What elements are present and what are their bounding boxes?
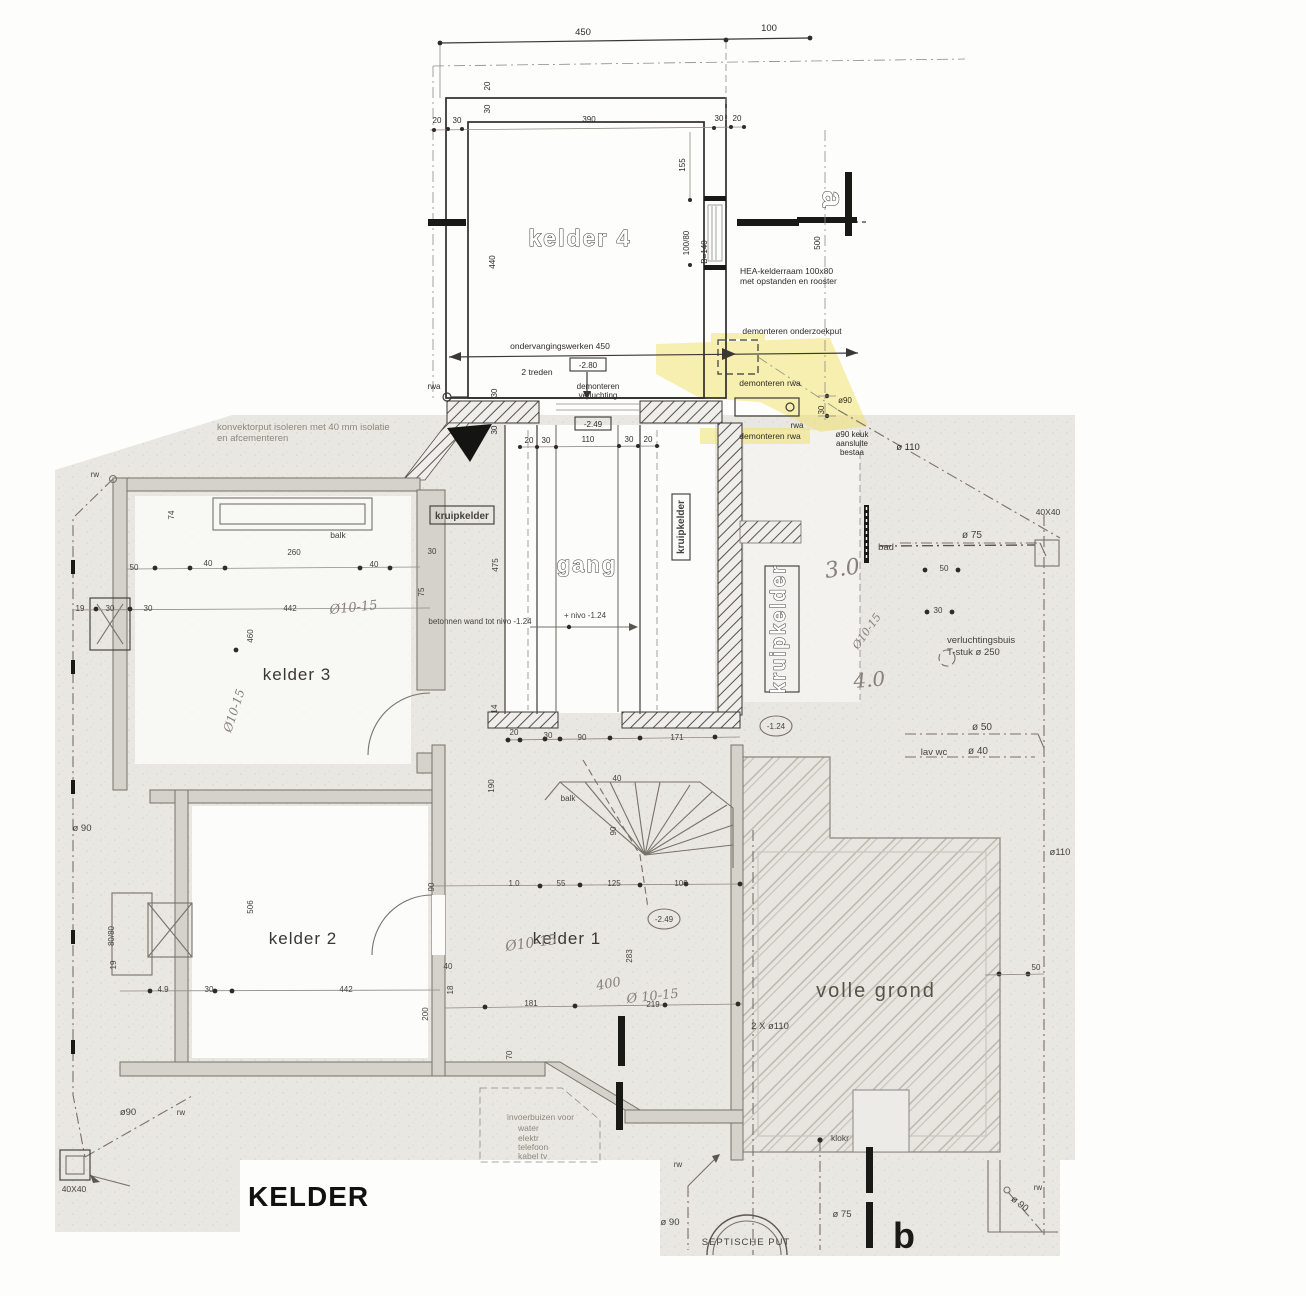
dim: 30: [490, 425, 499, 434]
dim: 40: [444, 962, 453, 971]
basement-plan-drawing: kelder 4 gang kelder 3 kelder 2 kelder 1…: [0, 0, 1306, 1296]
annotation-verluchting: verluchting: [579, 391, 618, 400]
dim: 30: [542, 436, 551, 445]
dim: 30: [625, 435, 634, 444]
dim: 55: [557, 879, 566, 888]
dim: 20: [525, 436, 534, 445]
pipe-dia90-bottom: ø 90: [660, 1217, 679, 1228]
pipe-dia75-bottom: ø 75: [832, 1209, 851, 1220]
fixture-lav-wc: lav wc: [921, 747, 948, 758]
dim: 20: [433, 116, 442, 125]
dim: 100: [674, 879, 688, 888]
dim: 80/80: [107, 925, 116, 946]
pipe-rwa: rwa: [428, 382, 441, 391]
level-124-circled: -1.24: [767, 722, 786, 731]
section-marker-a: a: [816, 191, 849, 210]
dim: 450: [575, 27, 591, 38]
room-label-kelder3: kelder 3: [263, 665, 331, 684]
dim: 14: [490, 704, 499, 713]
dim: 20: [483, 81, 492, 90]
dim: 30: [715, 114, 724, 123]
room-label-kelder4: kelder 4: [529, 225, 632, 251]
dim: 442: [283, 604, 297, 613]
pipe-dia110-top: ø 110: [896, 442, 920, 453]
dim: 40: [613, 774, 622, 783]
annotation-ondervangingswerken: ondervangingswerken 450: [510, 341, 610, 351]
dim: 40: [204, 559, 213, 568]
dim: 30: [934, 606, 943, 615]
dim: 90: [427, 882, 436, 891]
dim-4040-botleft: 40X40: [62, 1184, 87, 1194]
annotation-konvektorput-1: konvektorput isoleren met 40 mm isolatie: [217, 422, 390, 433]
level-280: -2.80: [579, 361, 598, 370]
annotation-konvektorput-2: en afcementeren: [217, 433, 288, 444]
dim: 50: [940, 564, 949, 573]
annotation-keuk-1: ø90 keuk: [836, 430, 870, 439]
dim: 4.9: [157, 985, 169, 994]
annotation-invoer-kabel: kabel tv: [518, 1151, 548, 1161]
annotation-balk-k3: balk: [330, 530, 346, 540]
dim: 100/80: [682, 230, 691, 255]
dim: 181: [524, 999, 538, 1008]
dim: 18: [446, 985, 455, 994]
annotation-2-treden: 2 treden: [521, 367, 552, 377]
dim: 190: [487, 779, 496, 793]
annotation-invoer-1: invoerbuizen voor: [507, 1112, 574, 1122]
dim: 442: [339, 985, 353, 994]
level-249: -2.49: [584, 420, 603, 429]
handwritten-3-0: 3.0: [823, 554, 861, 584]
dim: 74: [167, 510, 176, 519]
dim: 75: [417, 587, 426, 596]
dim: 1.0: [508, 879, 520, 888]
dim: 70: [505, 1050, 514, 1059]
pipe-dia90: ø90: [838, 396, 852, 405]
pipe-dia75-right: ø 75: [962, 530, 982, 541]
dim: 50: [1032, 963, 1041, 972]
dim: 260: [287, 548, 301, 557]
dim: 30: [483, 104, 492, 113]
dim: 125: [607, 879, 621, 888]
dim: 30: [544, 731, 553, 740]
dim: 30: [490, 388, 499, 397]
floor-plan-sheet: kelder 4 gang kelder 3 kelder 2 kelder 1…: [0, 0, 1306, 1296]
annotation-demonteren: demonteren: [577, 382, 620, 391]
pipe-rw-corner: rw: [1034, 1183, 1043, 1192]
dim: 30: [817, 405, 826, 414]
fixture-bad: bad: [878, 542, 894, 553]
dim: 500: [813, 236, 822, 250]
label-kruipkelder-big: kruipkelder: [768, 564, 790, 694]
dim: 20: [510, 728, 519, 737]
dim: 110: [582, 435, 595, 444]
label-kruipkelder-left: kruipkelder: [435, 511, 489, 522]
dim: 19: [76, 604, 85, 613]
pipe-rwa-2: rwa: [791, 421, 804, 430]
annotation-demonteren-rwa-1: demonteren rwa: [739, 378, 801, 388]
label-septische-put: SEPTISCHE PUT: [702, 1237, 791, 1248]
sheet-title: KELDER: [248, 1181, 369, 1212]
annotation-verluchtingsbuis: verluchtingsbuis: [947, 635, 1015, 646]
room-label-kelder2: kelder 2: [269, 929, 337, 948]
dim: 200: [421, 1007, 430, 1021]
room-label-gang: gang: [557, 552, 618, 577]
dim-4040-right: 40X40: [1036, 507, 1061, 517]
pipe-dia110s-right: ø110: [1050, 847, 1071, 858]
pipe-rw-topleft: rw: [91, 470, 100, 479]
annotation-invoer-water: water: [517, 1123, 539, 1133]
dim: 30: [106, 604, 115, 613]
dim: 100: [761, 23, 777, 34]
dim: 30: [144, 604, 153, 613]
pipe-dia90-botleft: ø90: [120, 1107, 136, 1118]
dim: 475: [491, 558, 500, 572]
dim: 90: [609, 826, 618, 835]
pipe-rw-botleft: rw: [177, 1108, 186, 1117]
pipe-rw-bottom: rw: [674, 1160, 683, 1169]
dim: 40: [370, 560, 379, 569]
pipe-dia90-left: ø 90: [72, 823, 91, 834]
pipe-dia50: ø 50: [972, 722, 992, 733]
dim: 30: [453, 116, 462, 125]
dim: 50: [130, 563, 139, 572]
level-249-circled: -2.49: [655, 915, 674, 924]
pipe-dia40: ø 40: [968, 746, 988, 757]
room-label-volle-grond: volle grond: [816, 980, 936, 1002]
dim: 19: [109, 960, 118, 969]
dim: 283: [625, 949, 634, 963]
pipe-2x110: 2 X ø110: [751, 1021, 789, 1032]
dim: B=140: [700, 240, 709, 264]
dim: 30: [428, 547, 437, 556]
annotation-keuk-3: bestaa: [840, 448, 865, 457]
dim: 155: [678, 158, 687, 172]
dim: 460: [246, 629, 255, 643]
annotation-hea-2: met opstanden en rooster: [740, 276, 837, 286]
annotation-t-stuk: T-stuk ø 250: [947, 647, 1000, 658]
section-marker-b: b: [893, 1215, 915, 1256]
dim: 30: [205, 985, 214, 994]
level-nivo-124: + nivo -1.24: [564, 611, 607, 620]
dim: 440: [488, 255, 497, 269]
dim: 506: [246, 900, 255, 914]
annotation-hea-1: HEA-kelderraam 100x80: [740, 266, 833, 276]
dim: 20: [644, 435, 653, 444]
label-kruipkelder-mid: kruipkelder: [676, 500, 687, 554]
pipe-klokr: klokr: [831, 1133, 849, 1143]
annotation-demonteren-rwa-2: demonteren rwa: [739, 431, 801, 441]
dim: 390: [582, 115, 596, 124]
annotation-demonteren-onderzoekput: demonteren onderzoekput: [742, 326, 842, 336]
handwritten-4-0: 4.0: [851, 666, 886, 693]
annotation-keuk-2: aansluite: [836, 439, 869, 448]
dim: 171: [670, 733, 684, 742]
annotation-betonnen-wand: betonnen wand tot nivo -1.24: [428, 617, 532, 626]
dim: 20: [733, 114, 742, 123]
annotation-balk-k1: balk: [561, 794, 577, 803]
dim: 90: [578, 733, 587, 742]
